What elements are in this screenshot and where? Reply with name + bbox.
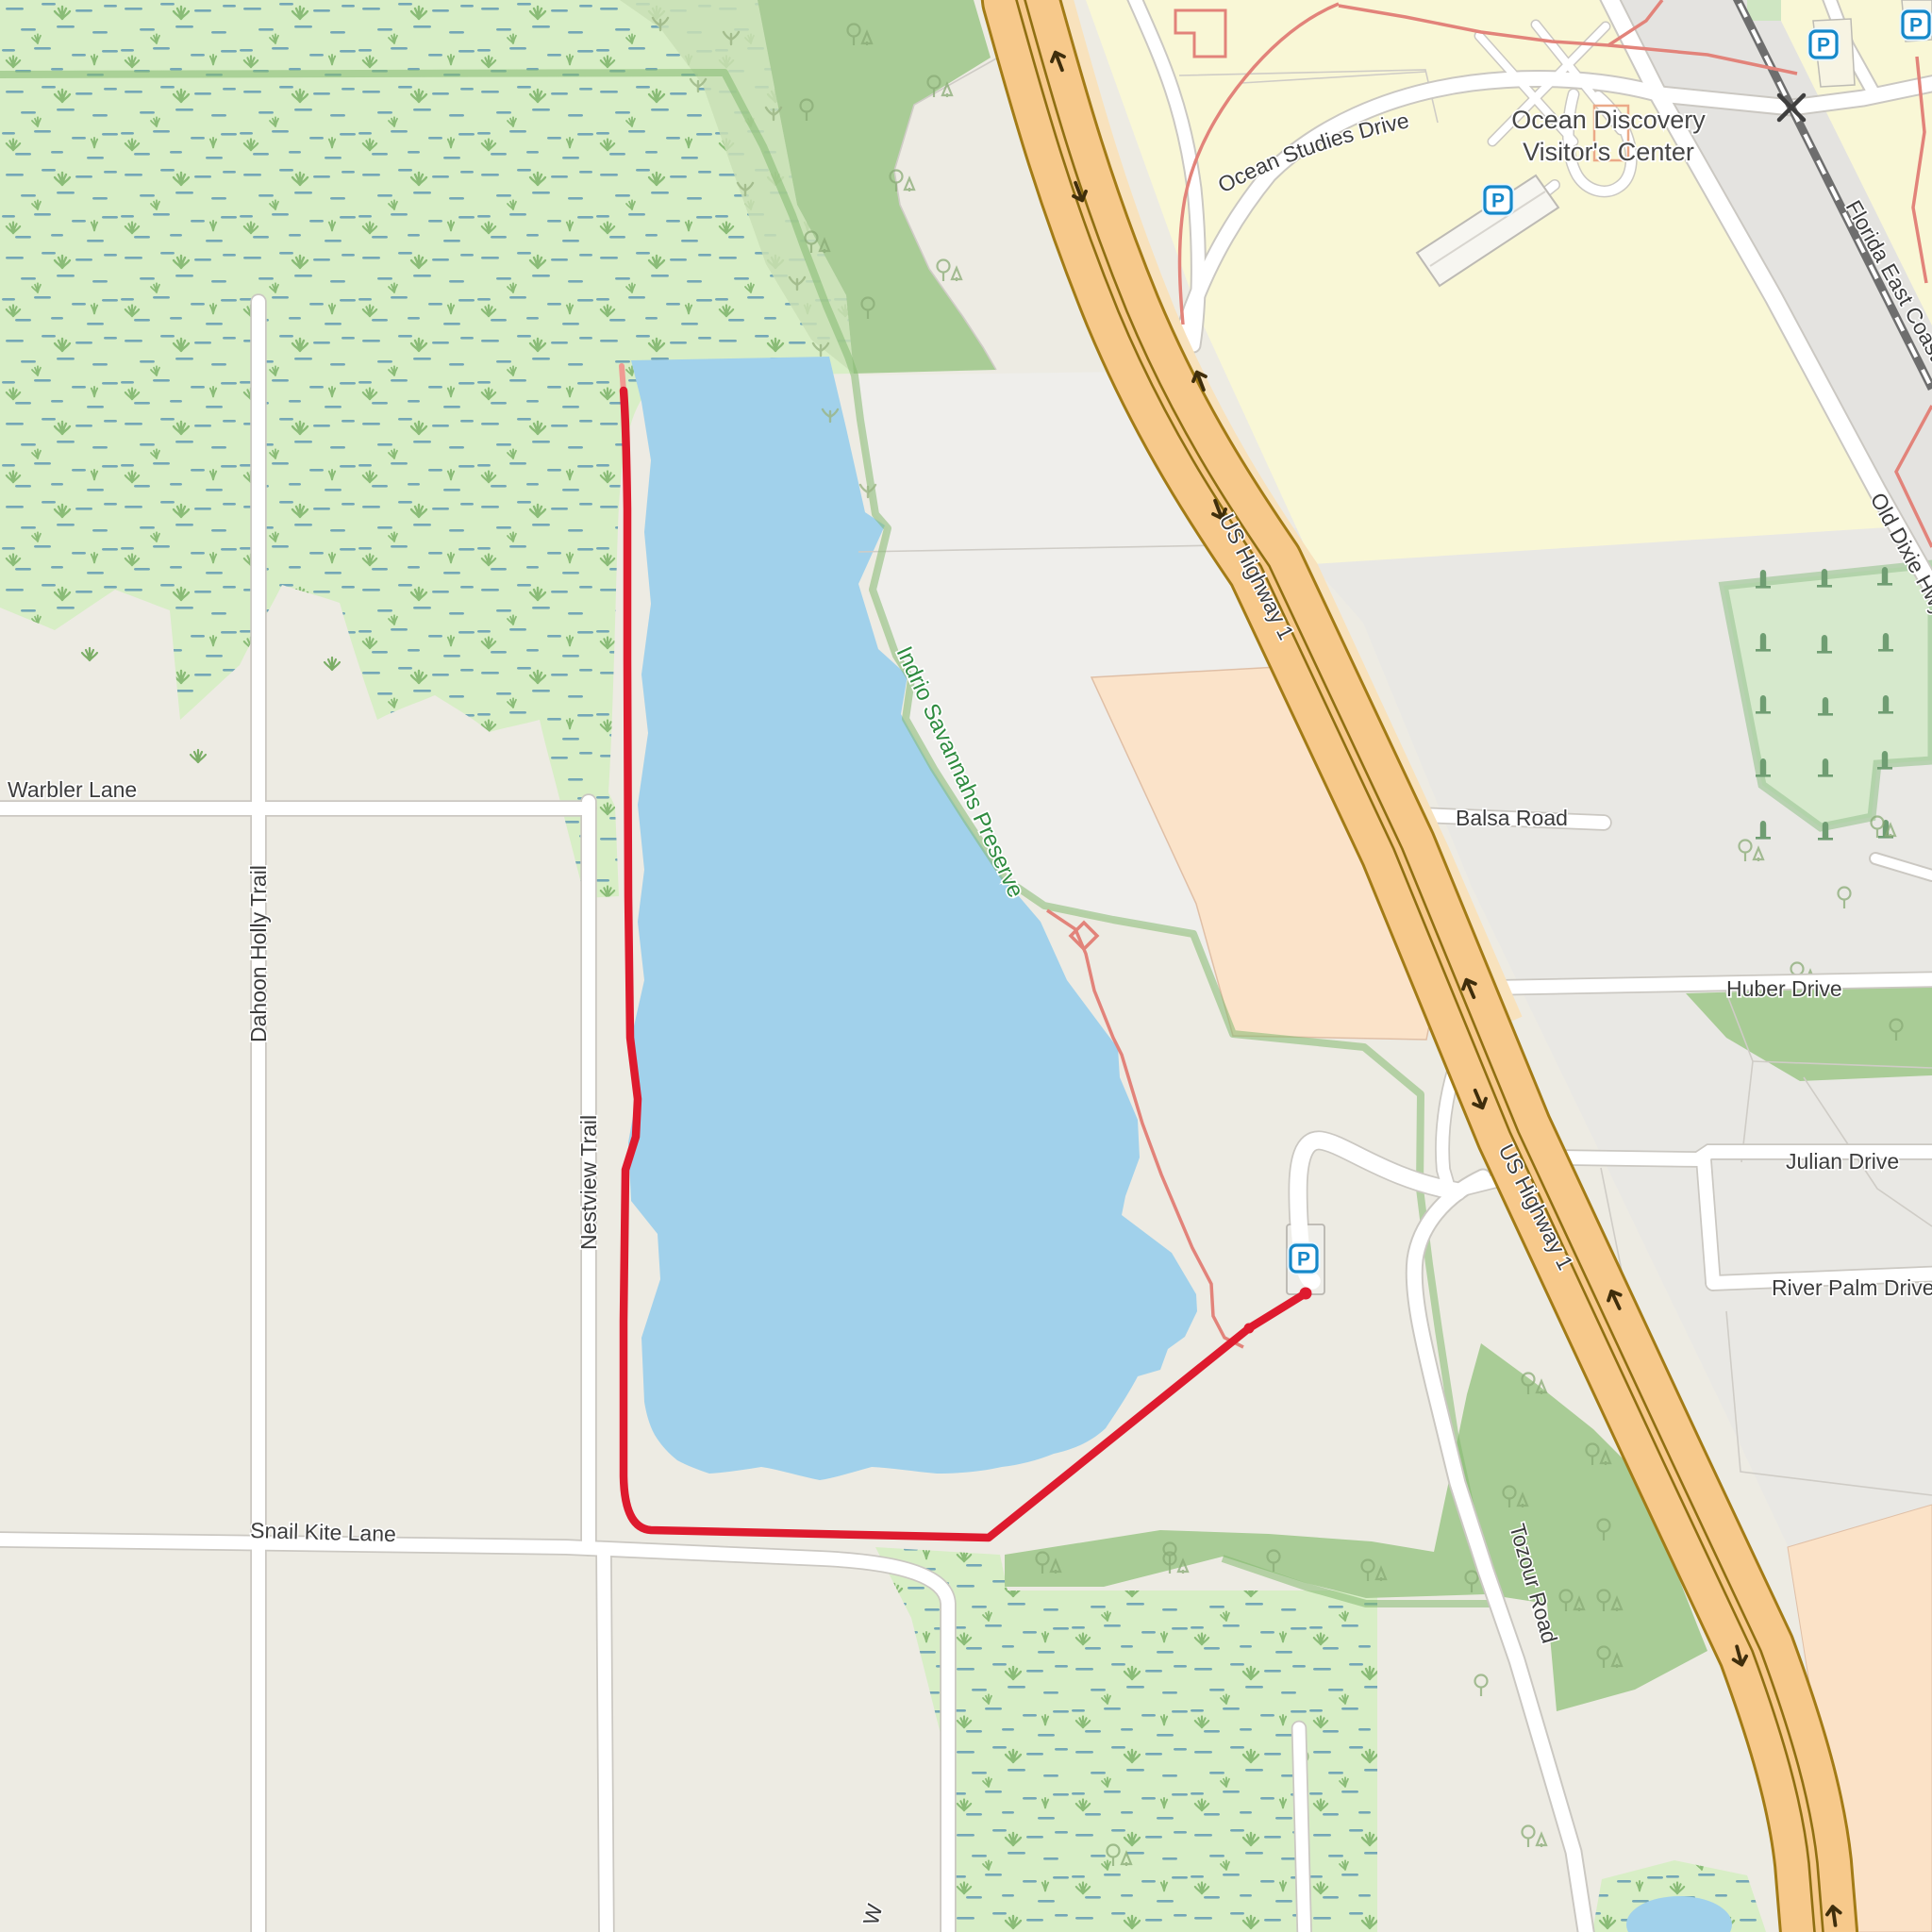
- svg-text:Huber Drive: Huber Drive: [1726, 976, 1842, 1001]
- svg-text:Warbler Lane: Warbler Lane: [8, 777, 137, 802]
- svg-text:Snail Kite Lane: Snail Kite Lane: [250, 1518, 396, 1546]
- svg-text:Visitor's Center: Visitor's Center: [1523, 138, 1694, 166]
- svg-text:Nestview Trail: Nestview Trail: [576, 1115, 601, 1250]
- svg-text:Dahoon Holly Trail: Dahoon Holly Trail: [246, 865, 271, 1042]
- svg-text:River Palm Drive: River Palm Drive: [1772, 1275, 1932, 1300]
- svg-text:Balsa Road: Balsa Road: [1456, 806, 1568, 830]
- svg-text:Julian Drive: Julian Drive: [1786, 1149, 1899, 1174]
- svg-text:Ocean Discovery: Ocean Discovery: [1511, 106, 1706, 134]
